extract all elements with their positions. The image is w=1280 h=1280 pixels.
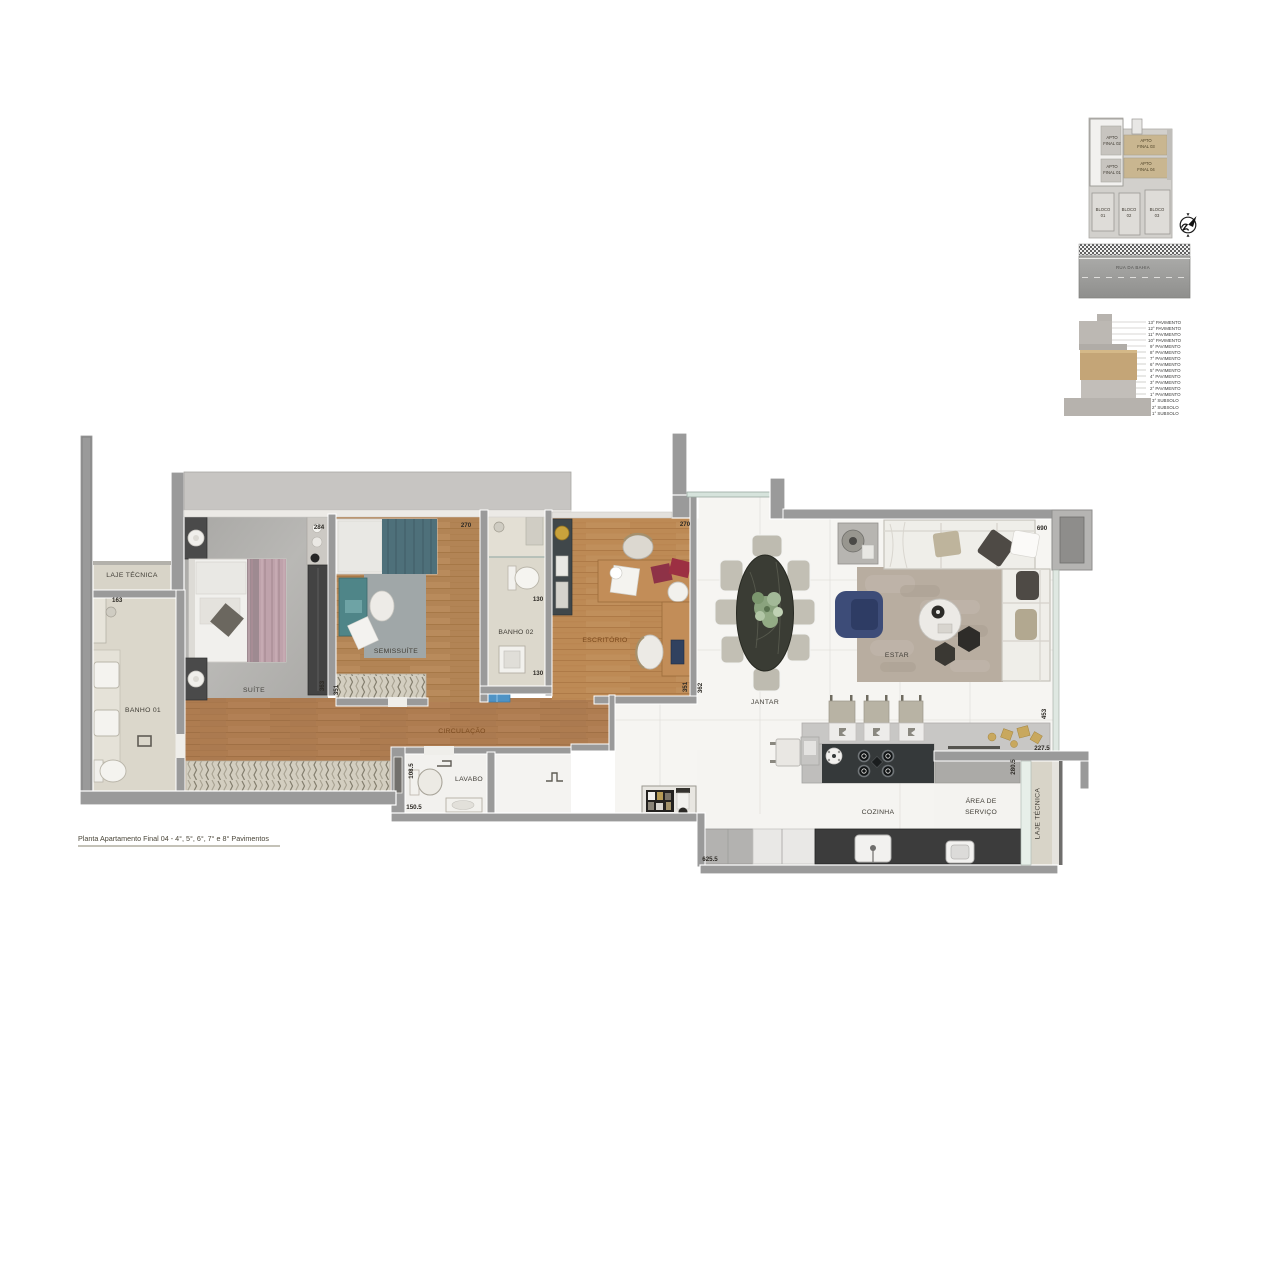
svg-text:7° PAVIMENTO: 7° PAVIMENTO	[1150, 356, 1181, 361]
svg-text:SEMISSUÍTE: SEMISSUÍTE	[374, 646, 418, 655]
svg-text:3° SUBSOLO: 3° SUBSOLO	[1152, 398, 1179, 403]
svg-text:130: 130	[533, 596, 544, 603]
svg-text:163: 163	[112, 597, 123, 604]
svg-text:APTO: APTO	[1106, 135, 1118, 140]
svg-text:2° SUBSOLO: 2° SUBSOLO	[1152, 405, 1179, 410]
svg-text:284: 284	[314, 524, 325, 531]
svg-text:108.5: 108.5	[408, 763, 415, 779]
svg-text:03: 03	[1155, 213, 1160, 218]
svg-text:BLOCO: BLOCO	[1150, 207, 1165, 212]
svg-text:Planta Apartamento Final 04 -: Planta Apartamento Final 04 - 4°, 5°, 6°…	[78, 834, 269, 843]
svg-text:JANTAR: JANTAR	[751, 699, 779, 706]
svg-text:ESCRITÓRIO: ESCRITÓRIO	[582, 635, 627, 644]
svg-text:150.5: 150.5	[406, 804, 422, 811]
svg-text:APTO: APTO	[1140, 138, 1152, 143]
svg-text:270: 270	[461, 522, 472, 529]
svg-text:FINAL 04: FINAL 04	[1137, 167, 1155, 172]
svg-text:130: 130	[533, 670, 544, 677]
svg-text:10° PAVIMENTO: 10° PAVIMENTO	[1148, 338, 1182, 343]
svg-text:FINAL 03: FINAL 03	[1137, 144, 1155, 149]
svg-text:APTO: APTO	[1106, 164, 1118, 169]
svg-text:BANHO 01: BANHO 01	[125, 707, 161, 714]
svg-text:FINAL 02: FINAL 02	[1103, 141, 1121, 146]
svg-text:CIRCULAÇÃO: CIRCULAÇÃO	[438, 726, 486, 735]
svg-text:RUA DA BAHIA: RUA DA BAHIA	[1116, 265, 1150, 270]
svg-text:BLOCO: BLOCO	[1122, 207, 1137, 212]
svg-text:1° PAVIMENTO: 1° PAVIMENTO	[1150, 392, 1181, 397]
svg-text:BANHO 02: BANHO 02	[498, 629, 533, 636]
svg-text:3° PAVIMENTO: 3° PAVIMENTO	[1150, 380, 1181, 385]
svg-text:COZINHA: COZINHA	[862, 809, 895, 816]
svg-text:2° PAVIMENTO: 2° PAVIMENTO	[1150, 386, 1181, 391]
svg-text:13° PAVIMENTO: 13° PAVIMENTO	[1148, 320, 1182, 325]
svg-text:1° SUBSOLO: 1° SUBSOLO	[1152, 411, 1179, 416]
svg-text:SERVIÇO: SERVIÇO	[965, 809, 997, 816]
svg-text:9° PAVIMENTO: 9° PAVIMENTO	[1150, 344, 1181, 349]
svg-text:BLOCO: BLOCO	[1096, 207, 1111, 212]
svg-text:ÁREA DE: ÁREA DE	[966, 796, 997, 805]
svg-text:SUÍTE: SUÍTE	[243, 685, 265, 694]
svg-text:11° PAVIMENTO: 11° PAVIMENTO	[1148, 332, 1181, 337]
svg-text:LAJE TÉCNICA: LAJE TÉCNICA	[1033, 788, 1042, 840]
svg-text:6° PAVIMENTO: 6° PAVIMENTO	[1150, 362, 1181, 367]
svg-text:363: 363	[319, 680, 326, 691]
svg-text:5° PAVIMENTO: 5° PAVIMENTO	[1150, 368, 1181, 373]
svg-text:362: 362	[697, 682, 704, 693]
svg-text:690: 690	[1037, 525, 1048, 532]
svg-text:625.5: 625.5	[702, 856, 718, 863]
svg-text:280.5: 280.5	[1010, 759, 1017, 775]
svg-text:351: 351	[333, 684, 340, 695]
svg-text:351: 351	[682, 681, 689, 692]
svg-text:FINAL 01: FINAL 01	[1103, 170, 1121, 175]
svg-text:8° PAVIMENTO: 8° PAVIMENTO	[1150, 350, 1181, 355]
svg-text:4° PAVIMENTO: 4° PAVIMENTO	[1150, 374, 1181, 379]
svg-text:APTO: APTO	[1140, 161, 1152, 166]
svg-text:01: 01	[1101, 213, 1106, 218]
svg-text:12° PAVIMENTO: 12° PAVIMENTO	[1148, 326, 1182, 331]
svg-text:270: 270	[680, 521, 691, 528]
svg-text:LAVABO: LAVABO	[455, 776, 483, 783]
svg-text:227.5: 227.5	[1034, 745, 1050, 752]
svg-text:ESTAR: ESTAR	[885, 652, 909, 659]
svg-text:02: 02	[1127, 213, 1132, 218]
svg-text:453: 453	[1041, 708, 1048, 719]
svg-text:LAJE TÉCNICA: LAJE TÉCNICA	[106, 570, 158, 579]
